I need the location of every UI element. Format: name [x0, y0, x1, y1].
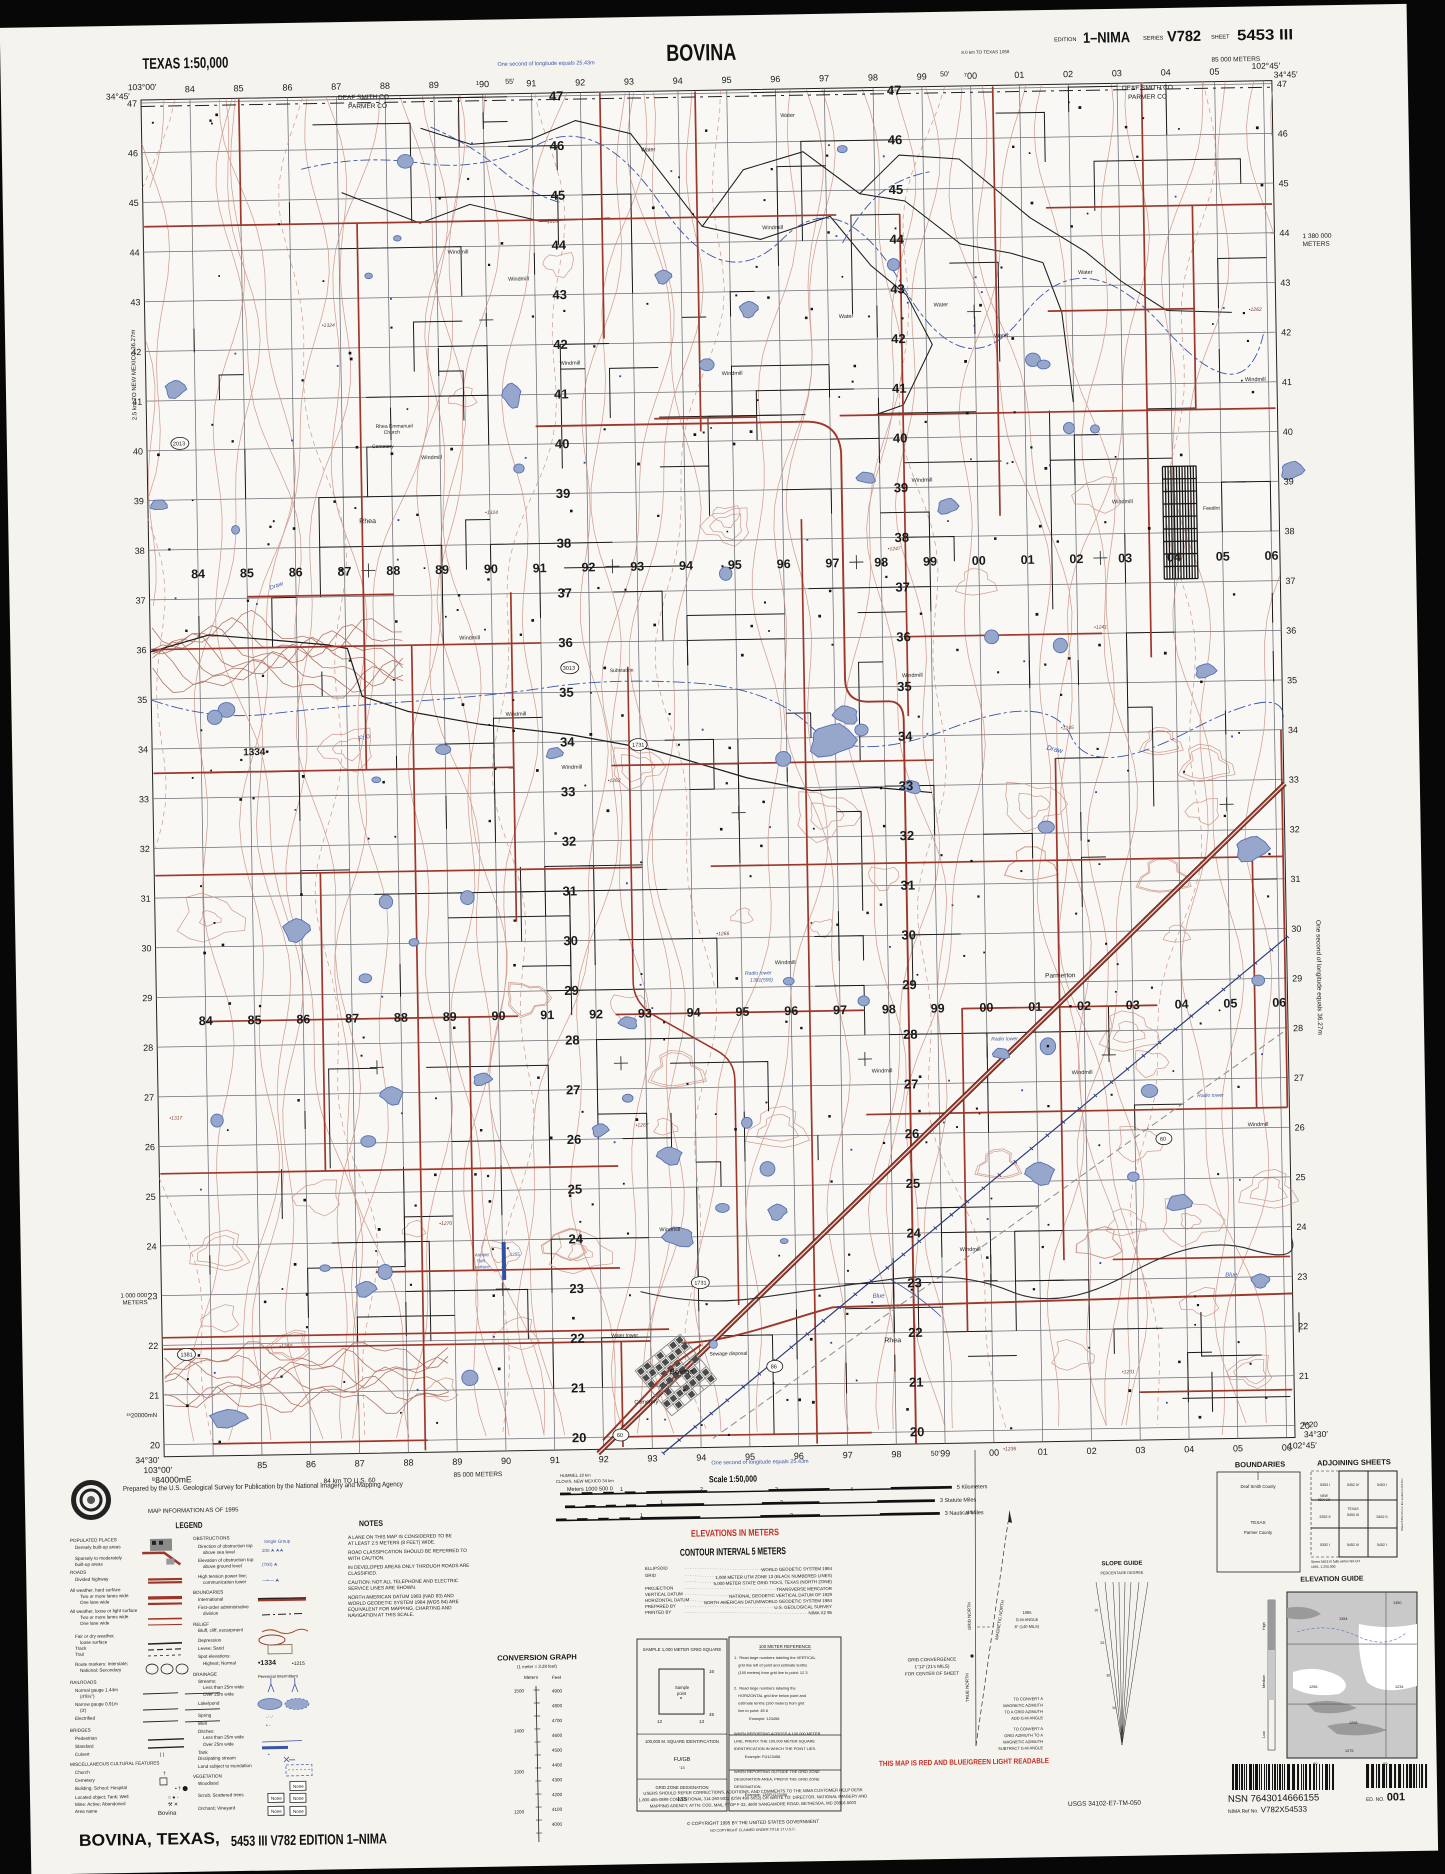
- svg-text:Building; School; Hospital: Building; School; Hospital: [75, 1785, 127, 1791]
- svg-text:1 000 000: 1 000 000: [120, 1293, 147, 1299]
- svg-text:surface: surface: [475, 1264, 490, 1269]
- svg-text:100,000 M. SQUARE IDENTIFICATI: 100,000 M. SQUARE IDENTIFICATION: [645, 1739, 719, 1744]
- svg-text:•1241: •1241: [1094, 625, 1107, 631]
- svg-text:35: 35: [559, 685, 574, 700]
- svg-text:23: 23: [907, 1275, 922, 1290]
- svg-text:SERIES: SERIES: [1143, 36, 1164, 42]
- svg-text:5353 I: 5353 I: [1320, 1483, 1330, 1487]
- svg-text:Feet: Feet: [552, 1675, 562, 1680]
- svg-text:Sheet 5453 III is in the south: Sheet 5453 III is in the southern NA CH: [1400, 1479, 1404, 1531]
- svg-text:00: 00: [989, 1448, 999, 1458]
- svg-text:41: 41: [892, 381, 907, 396]
- svg-text:4200: 4200: [552, 1792, 563, 1797]
- svg-text:98: 98: [874, 555, 888, 569]
- svg-text:40: 40: [1283, 427, 1293, 437]
- svg-text:Well: Well: [198, 1721, 207, 1726]
- svg-text:1500: 1500: [514, 1688, 525, 1693]
- svg-text:28: 28: [143, 1043, 153, 1053]
- svg-text:2: 2: [780, 1500, 783, 1506]
- svg-text:38: 38: [1284, 526, 1294, 536]
- svg-text:04: 04: [1175, 997, 1189, 1011]
- svg-text:Woodland: Woodland: [198, 1781, 219, 1786]
- svg-text:86: 86: [289, 565, 303, 579]
- svg-text:95: 95: [735, 1005, 749, 1019]
- svg-text:90: 90: [501, 1456, 511, 1466]
- svg-text:00: 00: [972, 554, 986, 568]
- svg-text:96: 96: [770, 74, 780, 84]
- svg-text:Windmill: Windmill: [561, 765, 582, 771]
- svg-text:⚒ ✕: ⚒ ✕: [168, 1802, 178, 1808]
- svg-text:Windmill: Windmill: [560, 361, 581, 367]
- svg-text:Route markers: Interstate;: Route markers: Interstate;: [75, 1661, 128, 1667]
- svg-text:Water: Water: [839, 314, 854, 320]
- svg-text:36: 36: [896, 629, 911, 644]
- svg-text:OBSTRUCTIONS: OBSTRUCTIONS: [193, 1535, 230, 1541]
- svg-text:2: 2: [790, 1513, 793, 1519]
- svg-text:DRAINAGE: DRAINAGE: [193, 1672, 217, 1677]
- svg-text:Blue: Blue: [1225, 1272, 1238, 1278]
- svg-text:Fair or dry weather,: Fair or dry weather,: [75, 1633, 115, 1639]
- svg-text:89: 89: [443, 1010, 457, 1024]
- svg-text:CONTOUR INTERVAL 5 METERS: CONTOUR INTERVAL 5 METERS: [680, 1546, 786, 1559]
- svg-text:1. Read large numbers labelin: 1. Read large numbers labeling the VERTI…: [734, 1655, 817, 1660]
- svg-text:Densely built-up areas: Densely built-up areas: [75, 1544, 121, 1550]
- svg-text:ADJOINING SHEETS: ADJOINING SHEETS: [1317, 1457, 1391, 1467]
- svg-text:Water: Water: [641, 147, 656, 153]
- svg-text:37: 37: [135, 595, 145, 605]
- svg-text:36: 36: [558, 635, 573, 650]
- svg-text:8.0 km TO TEXAS 1058: 8.0 km TO TEXAS 1058: [961, 49, 1010, 55]
- svg-text:30: 30: [1291, 924, 1301, 934]
- svg-text:27: 27: [144, 1092, 154, 1102]
- svg-text:95: 95: [728, 558, 742, 572]
- svg-text:87: 87: [331, 82, 341, 92]
- svg-text:HORIZONTAL DATUM: HORIZONTAL DATUM: [645, 1597, 690, 1603]
- svg-text:94: 94: [679, 559, 693, 573]
- svg-text:1354: 1354: [1339, 1617, 1347, 1621]
- svg-text:Sparsely to moderately: Sparsely to moderately: [75, 1555, 123, 1561]
- svg-text:SHEET: SHEET: [1211, 34, 1230, 40]
- svg-text:PRINTED BY: PRINTED BY: [645, 1610, 672, 1615]
- svg-text:FOR CENTER OF SHEET: FOR CENTER OF SHEET: [905, 1671, 959, 1677]
- svg-text:23: 23: [147, 1291, 157, 1301]
- svg-text:103°00′: 103°00′: [143, 1465, 172, 1475]
- svg-text:Less than 25m wide: Less than 25m wide: [203, 1734, 244, 1740]
- svg-text:Airfield: Airfield: [475, 1252, 489, 1257]
- svg-text:87: 87: [345, 1011, 359, 1025]
- svg-text:01: 01: [1038, 1447, 1048, 1457]
- svg-text:39: 39: [1284, 476, 1294, 486]
- svg-text:38: 38: [135, 546, 145, 556]
- svg-text:10: 10: [1094, 1608, 1098, 1612]
- svg-text:USGS 34102-E7-TM-050: USGS 34102-E7-TM-050: [1068, 1800, 1141, 1808]
- svg-text:43: 43: [130, 297, 140, 307]
- svg-text:Windmill: Windmill: [1245, 377, 1266, 383]
- svg-text:05: 05: [1233, 1443, 1243, 1453]
- svg-text:BOVINA: BOVINA: [666, 39, 736, 66]
- svg-text:37: 37: [557, 585, 572, 600]
- svg-text:1731: 1731: [632, 742, 644, 748]
- svg-text:Example: FU123456: Example: FU123456: [734, 1754, 780, 1759]
- svg-text:94: 94: [696, 1453, 706, 1463]
- svg-text:1275: 1275: [1345, 1749, 1353, 1753]
- svg-text:99: 99: [923, 554, 937, 568]
- svg-text:2013: 2013: [173, 441, 185, 447]
- svg-text:None: None: [293, 1809, 304, 1814]
- svg-text:SAMPLE 1,000 METER GRID SQUARE: SAMPLE 1,000 METER GRID SQUARE: [643, 1647, 722, 1652]
- svg-text:GRID CONVERGENCE: GRID CONVERGENCE: [908, 1657, 957, 1663]
- svg-text:RAILROADS: RAILROADS: [70, 1680, 97, 1685]
- svg-text:46: 46: [128, 148, 138, 158]
- svg-text:32: 32: [900, 828, 915, 843]
- svg-text:1256: 1256: [1309, 1685, 1317, 1689]
- svg-text:97: 97: [819, 73, 829, 83]
- svg-text:•1245: •1245: [1061, 725, 1074, 731]
- svg-text:Windmill: Windmill: [508, 276, 529, 282]
- svg-text:22: 22: [148, 1341, 158, 1351]
- svg-text:41: 41: [1282, 377, 1292, 387]
- svg-text:20: 20: [910, 1424, 925, 1439]
- svg-text:•1262: •1262: [1249, 307, 1262, 313]
- svg-text:1298: 1298: [1349, 1721, 1357, 1725]
- svg-text:02: 02: [1069, 552, 1083, 566]
- svg-text:37: 37: [895, 579, 910, 594]
- svg-text:4800: 4800: [552, 1703, 563, 1708]
- svg-text:26: 26: [905, 1126, 920, 1141]
- svg-text:Windmill: Windmill: [421, 455, 442, 461]
- svg-text:grid line left of point and es: grid line left of point and estimate ten…: [734, 1663, 807, 1668]
- svg-text:1731: 1731: [694, 1281, 706, 1287]
- svg-text:103°00′: 103°00′: [128, 82, 157, 92]
- svg-text:5452 I: 5452 I: [1377, 1543, 1387, 1547]
- svg-text:100 METER REFERENCE: 100 METER REFERENCE: [759, 1644, 811, 1649]
- svg-text:28: 28: [903, 1027, 918, 1042]
- svg-text:³⁸20000mN: ³⁸20000mN: [126, 1412, 157, 1420]
- svg-text:8° (140 MILS): 8° (140 MILS): [1015, 1624, 1040, 1629]
- svg-text:24: 24: [147, 1242, 157, 1252]
- svg-text:44: 44: [1279, 228, 1289, 238]
- svg-text:Depression: Depression: [198, 1638, 222, 1643]
- svg-text:22: 22: [1298, 1321, 1308, 1331]
- svg-text:HORIZONTAL grid line below poi: HORIZONTAL grid line below point and: [734, 1693, 806, 1698]
- svg-text:TEXAS 1:50,000: TEXAS 1:50,000: [142, 55, 228, 73]
- svg-text:36: 36: [1286, 626, 1296, 636]
- svg-text:Normal gauge 1.44m: Normal gauge 1.44m: [75, 1687, 118, 1693]
- svg-text:21: 21: [149, 1391, 159, 1401]
- svg-text:84: 84: [185, 84, 195, 94]
- svg-text:34: 34: [560, 734, 575, 749]
- svg-text:32: 32: [140, 844, 150, 854]
- svg-text:32: 32: [1290, 824, 1300, 834]
- svg-text:22: 22: [570, 1331, 585, 1346]
- svg-text:34°30′: 34°30′: [1304, 1429, 1328, 1439]
- svg-text:39: 39: [894, 480, 909, 495]
- svg-text:22: 22: [908, 1325, 923, 1340]
- svg-text:above sea level: above sea level: [203, 1549, 235, 1555]
- svg-text:90: 90: [484, 562, 498, 576]
- svg-text:4300: 4300: [552, 1777, 563, 1782]
- svg-text:99: 99: [931, 1001, 945, 1015]
- svg-text:POPULATED PLACES: POPULATED PLACES: [70, 1537, 117, 1543]
- svg-text:84: 84: [199, 1014, 213, 1028]
- svg-text:Windmill: Windmill: [722, 371, 743, 377]
- svg-text:41: 41: [554, 386, 569, 401]
- svg-text:Less than 25m wide: Less than 25m wide: [203, 1684, 244, 1690]
- svg-text:SUBTRACT G-M ANGLE: SUBTRACT G-M ANGLE: [998, 1745, 1043, 1751]
- svg-text:Windmill: Windmill: [960, 1247, 981, 1253]
- svg-text:37: 37: [1285, 576, 1295, 586]
- svg-text:42: 42: [891, 331, 906, 346]
- svg-text:47: 47: [887, 82, 902, 97]
- svg-text:2. Read large numbers labelin: 2. Read large numbers labeling the: [734, 1685, 796, 1690]
- svg-text:39: 39: [556, 486, 571, 501]
- svg-text:97: 97: [825, 556, 839, 570]
- svg-text:DESIGNATION AREA, PREFIX THE G: DESIGNATION AREA, PREFIX THE GRID ZONE: [734, 1777, 820, 1782]
- svg-text:1255: 1255: [510, 1252, 521, 1257]
- svg-text:None: None: [271, 1809, 282, 1814]
- svg-text:91: 91: [533, 561, 547, 575]
- svg-text:96: 96: [777, 557, 791, 571]
- svg-text:ELLIPSOID: ELLIPSOID: [645, 1566, 668, 1571]
- svg-text:Sheet 5453 III falls within NA: Sheet 5453 III falls within NA CH: [1311, 1559, 1361, 1564]
- svg-text:21: 21: [571, 1380, 586, 1395]
- svg-text:Cemetery: Cemetery: [75, 1778, 96, 1783]
- svg-text:LEGEND: LEGEND: [175, 1520, 202, 1530]
- svg-text:34°30′: 34°30′: [135, 1455, 159, 1465]
- svg-text:44: 44: [130, 248, 140, 258]
- svg-text:92: 92: [599, 1454, 609, 1464]
- svg-text:Divided highway: Divided highway: [75, 1576, 109, 1582]
- svg-text:88: 88: [403, 1458, 413, 1468]
- svg-text:TO CONVERT A: TO CONVERT A: [1013, 1696, 1043, 1702]
- svg-text:FU/GB: FU/GB: [674, 1757, 691, 1763]
- svg-text:(3′): (3′): [80, 1708, 87, 1713]
- svg-text:1200: 1200: [514, 1809, 525, 1814]
- svg-text:93: 93: [630, 559, 644, 573]
- svg-text:45: 45: [129, 198, 139, 208]
- svg-text:97: 97: [843, 1450, 853, 1460]
- svg-text:•1266: •1266: [716, 931, 729, 937]
- svg-text:1334•: 1334•: [243, 747, 269, 758]
- svg-text:94: 94: [687, 1006, 701, 1020]
- svg-text:1: 1: [660, 1500, 663, 1506]
- svg-text:45: 45: [889, 182, 904, 197]
- svg-text:50′: 50′: [931, 1451, 941, 1458]
- svg-text:27: 27: [1294, 1073, 1304, 1083]
- svg-text:Church: Church: [384, 430, 400, 436]
- svg-text:Blue: Blue: [873, 1293, 886, 1299]
- svg-text:4: 4: [850, 1487, 853, 1493]
- svg-text:26: 26: [1295, 1122, 1305, 1132]
- svg-text:VERTICAL DATUM: VERTICAL DATUM: [645, 1591, 683, 1597]
- svg-text:20: 20: [572, 1430, 587, 1445]
- svg-text:Pedestrian: Pedestrian: [75, 1736, 97, 1741]
- svg-text:Direction of obstruction top: Direction of obstruction top: [198, 1543, 253, 1549]
- svg-text:Dissipating stream: Dissipating stream: [198, 1755, 236, 1761]
- svg-text:1350: 1350: [1393, 1601, 1401, 1605]
- svg-text:86: 86: [296, 1012, 310, 1026]
- svg-text:TRANSVERSE MERCATOR: TRANSVERSE MERCATOR: [776, 1586, 832, 1592]
- svg-text:◦’ ◦’: ◦’ ◦’: [266, 1715, 273, 1721]
- svg-text:(1 meter = 3.28 feet): (1 meter = 3.28 feet): [517, 1664, 558, 1670]
- svg-text:34: 34: [138, 745, 148, 755]
- svg-text:•1324: •1324: [322, 323, 335, 329]
- svg-text:VEGETATION: VEGETATION: [193, 1773, 222, 1778]
- svg-text:¹90: ¹90: [476, 79, 489, 89]
- svg-text:•1247: •1247: [888, 546, 901, 552]
- svg-text:Culvert: Culvert: [75, 1752, 90, 1757]
- svg-text:60: 60: [1160, 1137, 1166, 1143]
- svg-text:U.S. GEOLOGICAL SURVEY: U.S. GEOLOGICAL SURVEY: [774, 1604, 832, 1610]
- svg-text:•1270: •1270: [439, 1221, 452, 1227]
- svg-text:3013: 3013: [563, 666, 575, 672]
- svg-text:45: 45: [709, 1712, 715, 1717]
- svg-text:Single Group: Single Group: [264, 1539, 291, 1544]
- svg-text:85: 85: [240, 566, 254, 580]
- svg-text:Two or more lanes wide: Two or more lanes wide: [80, 1593, 129, 1599]
- svg-text:SLOPE GUIDE: SLOPE GUIDE: [1101, 1561, 1142, 1568]
- svg-text:RELIEF: RELIEF: [193, 1622, 209, 1627]
- svg-text:98: 98: [882, 1002, 896, 1016]
- svg-text:91: 91: [550, 1455, 560, 1465]
- svg-text:38: 38: [894, 530, 909, 545]
- svg-text:MEX CO: MEX CO: [1318, 1498, 1331, 1502]
- svg-text:Water: Water: [1078, 270, 1093, 276]
- svg-text:5352 II: 5352 II: [1320, 1515, 1331, 1519]
- svg-text:Tank: Tank: [198, 1750, 208, 1755]
- svg-text:1400: 1400: [514, 1728, 525, 1733]
- svg-text:Windmill: Windmill: [506, 711, 527, 717]
- svg-text:33: 33: [899, 778, 914, 793]
- svg-text:01: 01: [1014, 70, 1024, 80]
- svg-text:line to point: 45 6: line to point: 45 6: [734, 1708, 768, 1713]
- svg-text:Perennial Intermittent: Perennial Intermittent: [258, 1673, 299, 1679]
- svg-text:(700) ⮝: (700) ⮝: [262, 1562, 278, 1567]
- svg-text:Ditches:: Ditches:: [198, 1729, 215, 1734]
- svg-text:Rhea: Rhea: [359, 518, 376, 525]
- svg-text:04: 04: [1161, 67, 1171, 77]
- svg-text:Orchard; Vineyard: Orchard; Vineyard: [198, 1805, 236, 1811]
- svg-text:3 Nautical Miles: 3 Nautical Miles: [945, 1510, 984, 1517]
- svg-text:33: 33: [139, 794, 149, 804]
- svg-text:47: 47: [549, 88, 564, 103]
- svg-text:Meters 1000 500 0: Meters 1000 500 0: [567, 1486, 613, 1493]
- svg-text:87: 87: [355, 1458, 365, 1468]
- svg-text:TEXAS: TEXAS: [1347, 1507, 1359, 1511]
- svg-text:46: 46: [888, 132, 903, 147]
- svg-text:Bovina: Bovina: [158, 1811, 177, 1817]
- svg-text:05: 05: [1223, 996, 1237, 1010]
- svg-text:—•— ⮝: —•— ⮝: [262, 1578, 280, 1584]
- svg-text:METERS: METERS: [123, 1300, 148, 1306]
- svg-text:GN: GN: [966, 1510, 973, 1515]
- svg-text:30: 30: [1106, 1673, 1110, 1677]
- svg-text:Rhea: Rhea: [884, 1337, 901, 1344]
- svg-text:ROADS: ROADS: [70, 1570, 86, 1575]
- svg-text:Streams:: Streams:: [198, 1679, 216, 1684]
- svg-text:1 380 000: 1 380 000: [1302, 233, 1331, 241]
- svg-text:29: 29: [142, 993, 152, 1003]
- svg-text:40: 40: [133, 446, 143, 456]
- svg-text:30: 30: [901, 927, 916, 942]
- svg-text:31: 31: [1290, 874, 1300, 884]
- svg-text:31: 31: [141, 894, 151, 904]
- svg-text:28: 28: [1293, 1023, 1303, 1033]
- svg-text:Windmill: Windmill: [659, 1227, 680, 1233]
- svg-text:EDITION: EDITION: [1054, 37, 1076, 43]
- svg-text:03: 03: [1135, 1445, 1145, 1455]
- svg-text:Levee; Sand: Levee; Sand: [198, 1646, 224, 1651]
- svg-text:Church: Church: [75, 1770, 90, 1775]
- svg-text:V782: V782: [1167, 28, 1201, 46]
- svg-text:93: 93: [647, 1453, 657, 1463]
- svg-text:42: 42: [553, 337, 568, 352]
- svg-text:Windmill: Windmill: [459, 635, 480, 641]
- svg-text:⁷00: ⁷00: [964, 71, 977, 81]
- svg-text:NOTES: NOTES: [359, 1519, 384, 1528]
- svg-text:00: 00: [979, 1001, 993, 1015]
- svg-text:CONVERSION GRAPH: CONVERSION GRAPH: [497, 1652, 577, 1662]
- svg-text:27: 27: [904, 1076, 919, 1091]
- svg-text:• ◦: • ◦: [266, 1723, 271, 1729]
- svg-text:5352 I: 5352 I: [1320, 1543, 1330, 1547]
- svg-text:Substation: Substation: [610, 668, 634, 674]
- svg-text:06: 06: [1264, 549, 1278, 563]
- svg-text:55′: 55′: [505, 79, 515, 86]
- svg-text:TEXAS: TEXAS: [1250, 1520, 1265, 1525]
- svg-text:03: 03: [1126, 998, 1140, 1012]
- svg-text:20: 20: [150, 1440, 160, 1450]
- svg-text:44: 44: [551, 237, 566, 252]
- svg-text:4500: 4500: [552, 1748, 563, 1753]
- svg-text:Bluff, cliff, escarpment: Bluff, cliff, escarpment: [198, 1627, 244, 1633]
- svg-text:1991, 1:250,000: 1991, 1:250,000: [1311, 1565, 1336, 1569]
- svg-text:TO CONVERT A: TO CONVERT A: [1013, 1726, 1043, 1732]
- svg-text:1234: 1234: [1395, 1685, 1403, 1689]
- svg-text:3 Statute Miles: 3 Statute Miles: [940, 1497, 977, 1504]
- svg-text:23: 23: [1297, 1272, 1307, 1282]
- svg-text:NAVIGATION AT THIS SCALE.: NAVIGATION AT THIS SCALE.: [348, 1612, 414, 1619]
- svg-text:29: 29: [902, 977, 917, 992]
- svg-text:03: 03: [1112, 68, 1122, 78]
- svg-text:TO A GRID AZIMUTH: TO A GRID AZIMUTH: [1004, 1709, 1043, 1715]
- svg-text:28: 28: [565, 1032, 580, 1047]
- svg-text:Windmill: Windmill: [1112, 499, 1133, 505]
- svg-text:Over 25m wide: Over 25m wide: [203, 1741, 234, 1747]
- svg-text:above ground level: above ground level: [203, 1563, 242, 1569]
- svg-text:13: 13: [699, 1719, 705, 1724]
- svg-text:Standard: Standard: [75, 1744, 94, 1749]
- svg-text:93: 93: [624, 77, 634, 87]
- svg-text:02: 02: [1077, 999, 1091, 1013]
- svg-text:Located object; Tank; Well: Located object; Tank; Well: [75, 1794, 129, 1800]
- svg-text:86: 86: [771, 1364, 777, 1370]
- svg-text:Land subject to inundation: Land subject to inundation: [198, 1763, 252, 1769]
- svg-text:PARMER CO: PARMER CO: [348, 103, 387, 111]
- svg-text:Electrified: Electrified: [75, 1716, 96, 1721]
- svg-text:34: 34: [898, 728, 913, 743]
- svg-text:³⁴20: ³⁴20: [1303, 1420, 1319, 1429]
- svg-text:4400: 4400: [552, 1762, 563, 1767]
- svg-text:26: 26: [567, 1132, 582, 1147]
- svg-text:91: 91: [540, 1008, 554, 1022]
- svg-text:Medium: Medium: [1262, 1675, 1266, 1689]
- svg-text:communication tower: communication tower: [203, 1579, 247, 1585]
- svg-text:GRID: GRID: [645, 1573, 656, 1578]
- svg-text:Water tower: Water tower: [611, 1333, 638, 1339]
- svg-text:35: 35: [137, 695, 147, 705]
- svg-text:None: None: [293, 1784, 304, 1789]
